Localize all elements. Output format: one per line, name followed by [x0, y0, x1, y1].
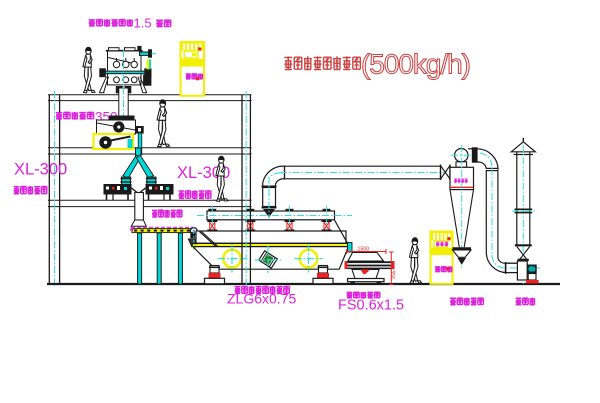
svg-text:1500: 1500	[358, 247, 370, 253]
svg-text:(500kg/h): (500kg/h)	[361, 49, 471, 80]
svg-text:ZLG6x0.75: ZLG6x0.75	[227, 291, 296, 307]
svg-text:XL-300: XL-300	[14, 161, 67, 179]
svg-text:350: 350	[389, 270, 395, 279]
svg-text:FS0.6x1.5: FS0.6x1.5	[338, 298, 404, 314]
svg-text:1.5: 1.5	[134, 16, 152, 31]
